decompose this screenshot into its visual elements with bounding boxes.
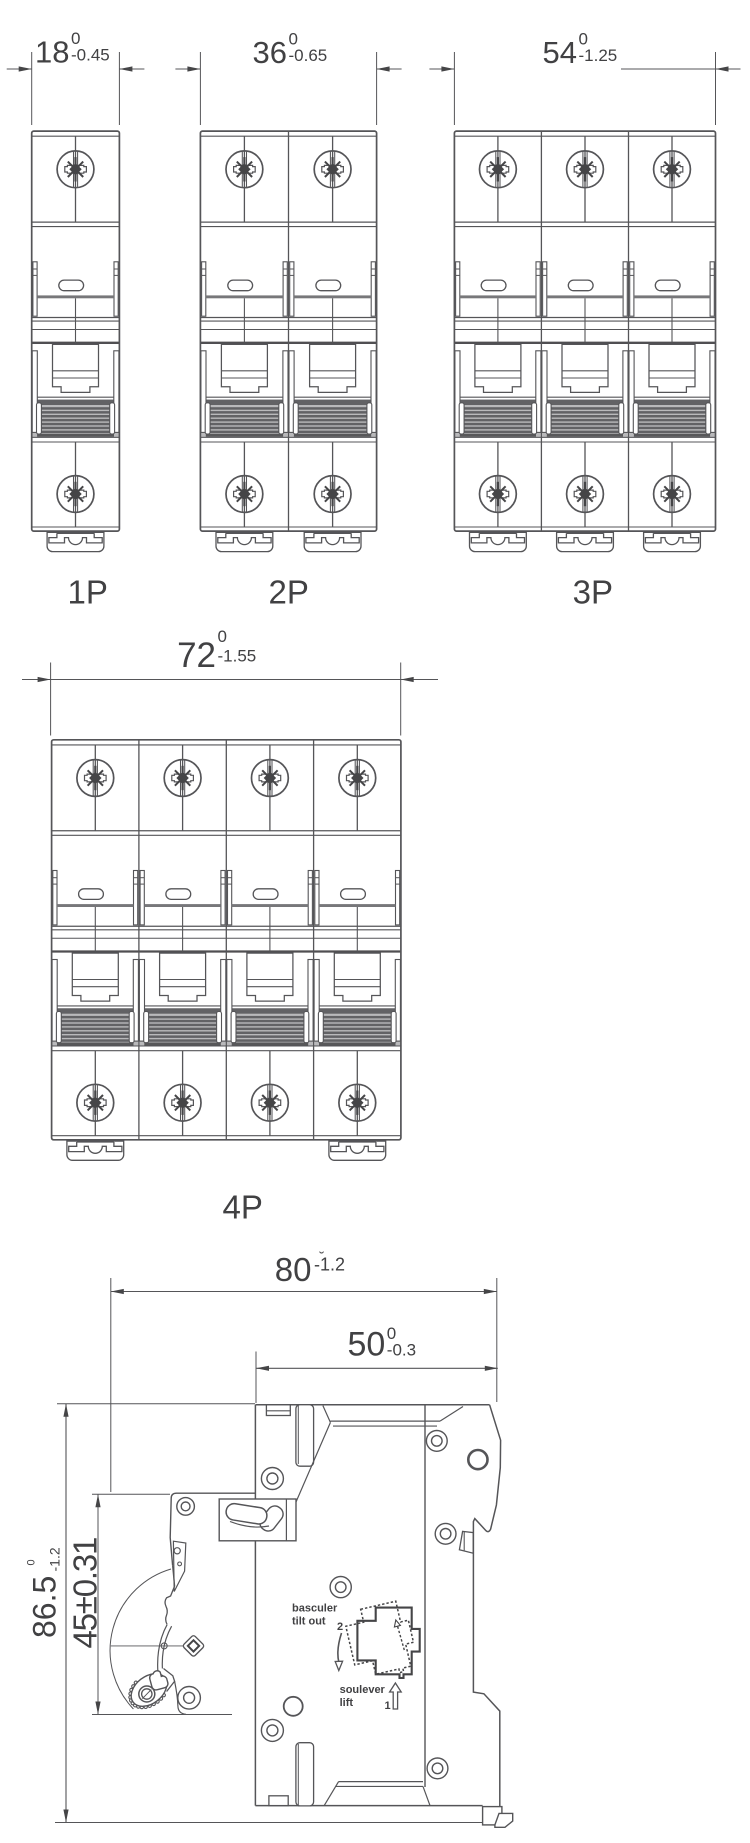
svg-text:1P: 1P xyxy=(68,574,108,611)
svg-text:-1.25: -1.25 xyxy=(579,46,618,65)
svg-text:4P: 4P xyxy=(223,1189,263,1226)
svg-text:54: 54 xyxy=(543,35,577,70)
svg-text:1: 1 xyxy=(385,1700,391,1712)
svg-text:tilt out: tilt out xyxy=(292,1616,326,1628)
svg-text:lift: lift xyxy=(340,1697,354,1709)
svg-text:-1.2: -1.2 xyxy=(47,1547,63,1571)
svg-text:45±0.31: 45±0.31 xyxy=(67,1538,104,1649)
svg-text:-0.3: -0.3 xyxy=(387,1341,416,1360)
svg-text:3P: 3P xyxy=(573,574,613,611)
svg-text:50: 50 xyxy=(347,1325,385,1363)
svg-text:18: 18 xyxy=(35,35,69,70)
svg-text:soulever: soulever xyxy=(340,1684,386,1696)
svg-text:-0.65: -0.65 xyxy=(289,46,328,65)
svg-text:0: 0 xyxy=(26,1559,38,1565)
svg-text:36: 36 xyxy=(253,35,287,70)
svg-text:2P: 2P xyxy=(269,574,309,611)
svg-text:-1.55: -1.55 xyxy=(218,647,257,666)
svg-text:0: 0 xyxy=(218,627,227,646)
svg-text:˘: ˘ xyxy=(319,1249,325,1265)
svg-text:80: 80 xyxy=(275,1251,312,1288)
svg-text:86.5: 86.5 xyxy=(27,1576,63,1638)
svg-text:basculer: basculer xyxy=(292,1603,338,1615)
svg-text:72: 72 xyxy=(177,636,216,675)
svg-text:-0.45: -0.45 xyxy=(71,46,110,65)
svg-text:2: 2 xyxy=(337,1621,343,1633)
